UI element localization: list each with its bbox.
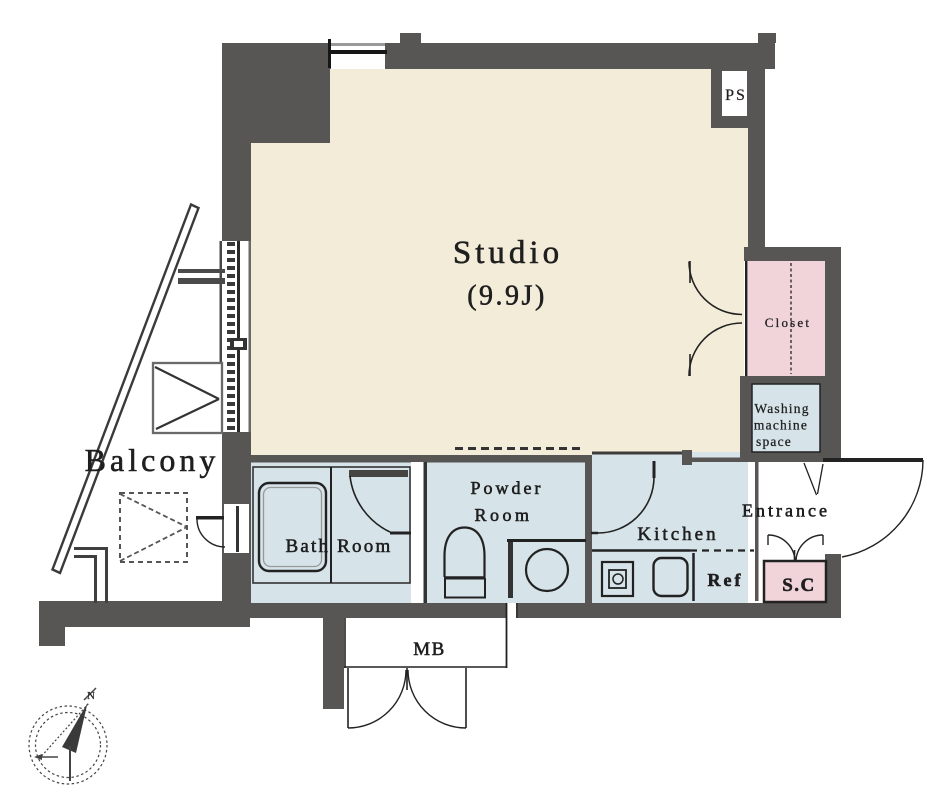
svg-text:Ref: Ref	[708, 570, 744, 590]
svg-text:Studio: Studio	[453, 235, 563, 271]
svg-text:N: N	[87, 690, 95, 702]
svg-text:Balcony: Balcony	[85, 442, 220, 478]
svg-text:Entrance: Entrance	[742, 501, 830, 521]
svg-text:Closet: Closet	[765, 315, 811, 330]
svg-text:Washing: Washing	[754, 401, 809, 416]
svg-text:Powder: Powder	[471, 478, 544, 498]
svg-text:S.C: S.C	[782, 575, 816, 596]
svg-text:MB: MB	[413, 639, 446, 660]
svg-text:Bath Room: Bath Room	[286, 536, 393, 557]
svg-text:machine: machine	[754, 418, 808, 433]
svg-text:PS: PS	[725, 87, 747, 104]
svg-text:(9.9J): (9.9J)	[467, 281, 547, 312]
svg-text:space: space	[756, 434, 792, 449]
svg-text:Kitchen: Kitchen	[637, 524, 718, 545]
svg-text:Room: Room	[474, 505, 532, 525]
